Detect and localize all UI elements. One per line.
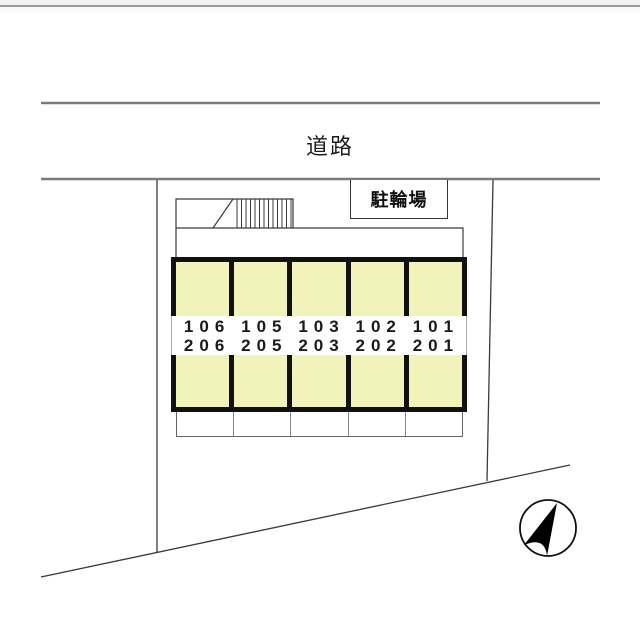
balcony-strip [176,412,463,437]
balcony-bay [233,412,290,436]
unit-row-first-floor: 106 105 103 102 101 [172,317,466,336]
unit-number: 106 [176,317,233,336]
unit-number: 202 [348,336,405,355]
site-plan-canvas: 道路 駐輪場 106 105 103 102 101 206 205 203 2… [0,0,640,630]
unit-number: 101 [405,317,462,336]
unit-number: 102 [348,317,405,336]
bicycle-parking-label: 駐輪場 [371,186,428,212]
unit-number-band: 106 105 103 102 101 206 205 203 202 201 [171,316,467,355]
unit-row-second-floor: 206 205 203 202 201 [172,336,466,355]
walkway-outline [176,228,463,257]
road-label: 道路 [280,129,380,161]
unit-number: 206 [176,336,233,355]
stairs-hatch [237,200,291,228]
boundary-diagonal-line [41,465,570,577]
unit-number: 203 [290,336,347,355]
unit-number: 105 [233,317,290,336]
balcony-bay [348,412,405,436]
bicycle-parking-box: 駐輪場 [350,180,448,219]
building-outline: 106 105 103 102 101 206 205 203 202 201 [171,257,467,412]
unit-number: 205 [233,336,290,355]
balcony-bay [177,412,233,436]
stairs-diagonal [213,199,233,228]
unit-number: 201 [405,336,462,355]
boundary-right-line [487,180,493,481]
balcony-bay [405,412,462,436]
balcony-bay [290,412,347,436]
unit-number: 103 [290,317,347,336]
north-compass-icon [516,496,580,560]
